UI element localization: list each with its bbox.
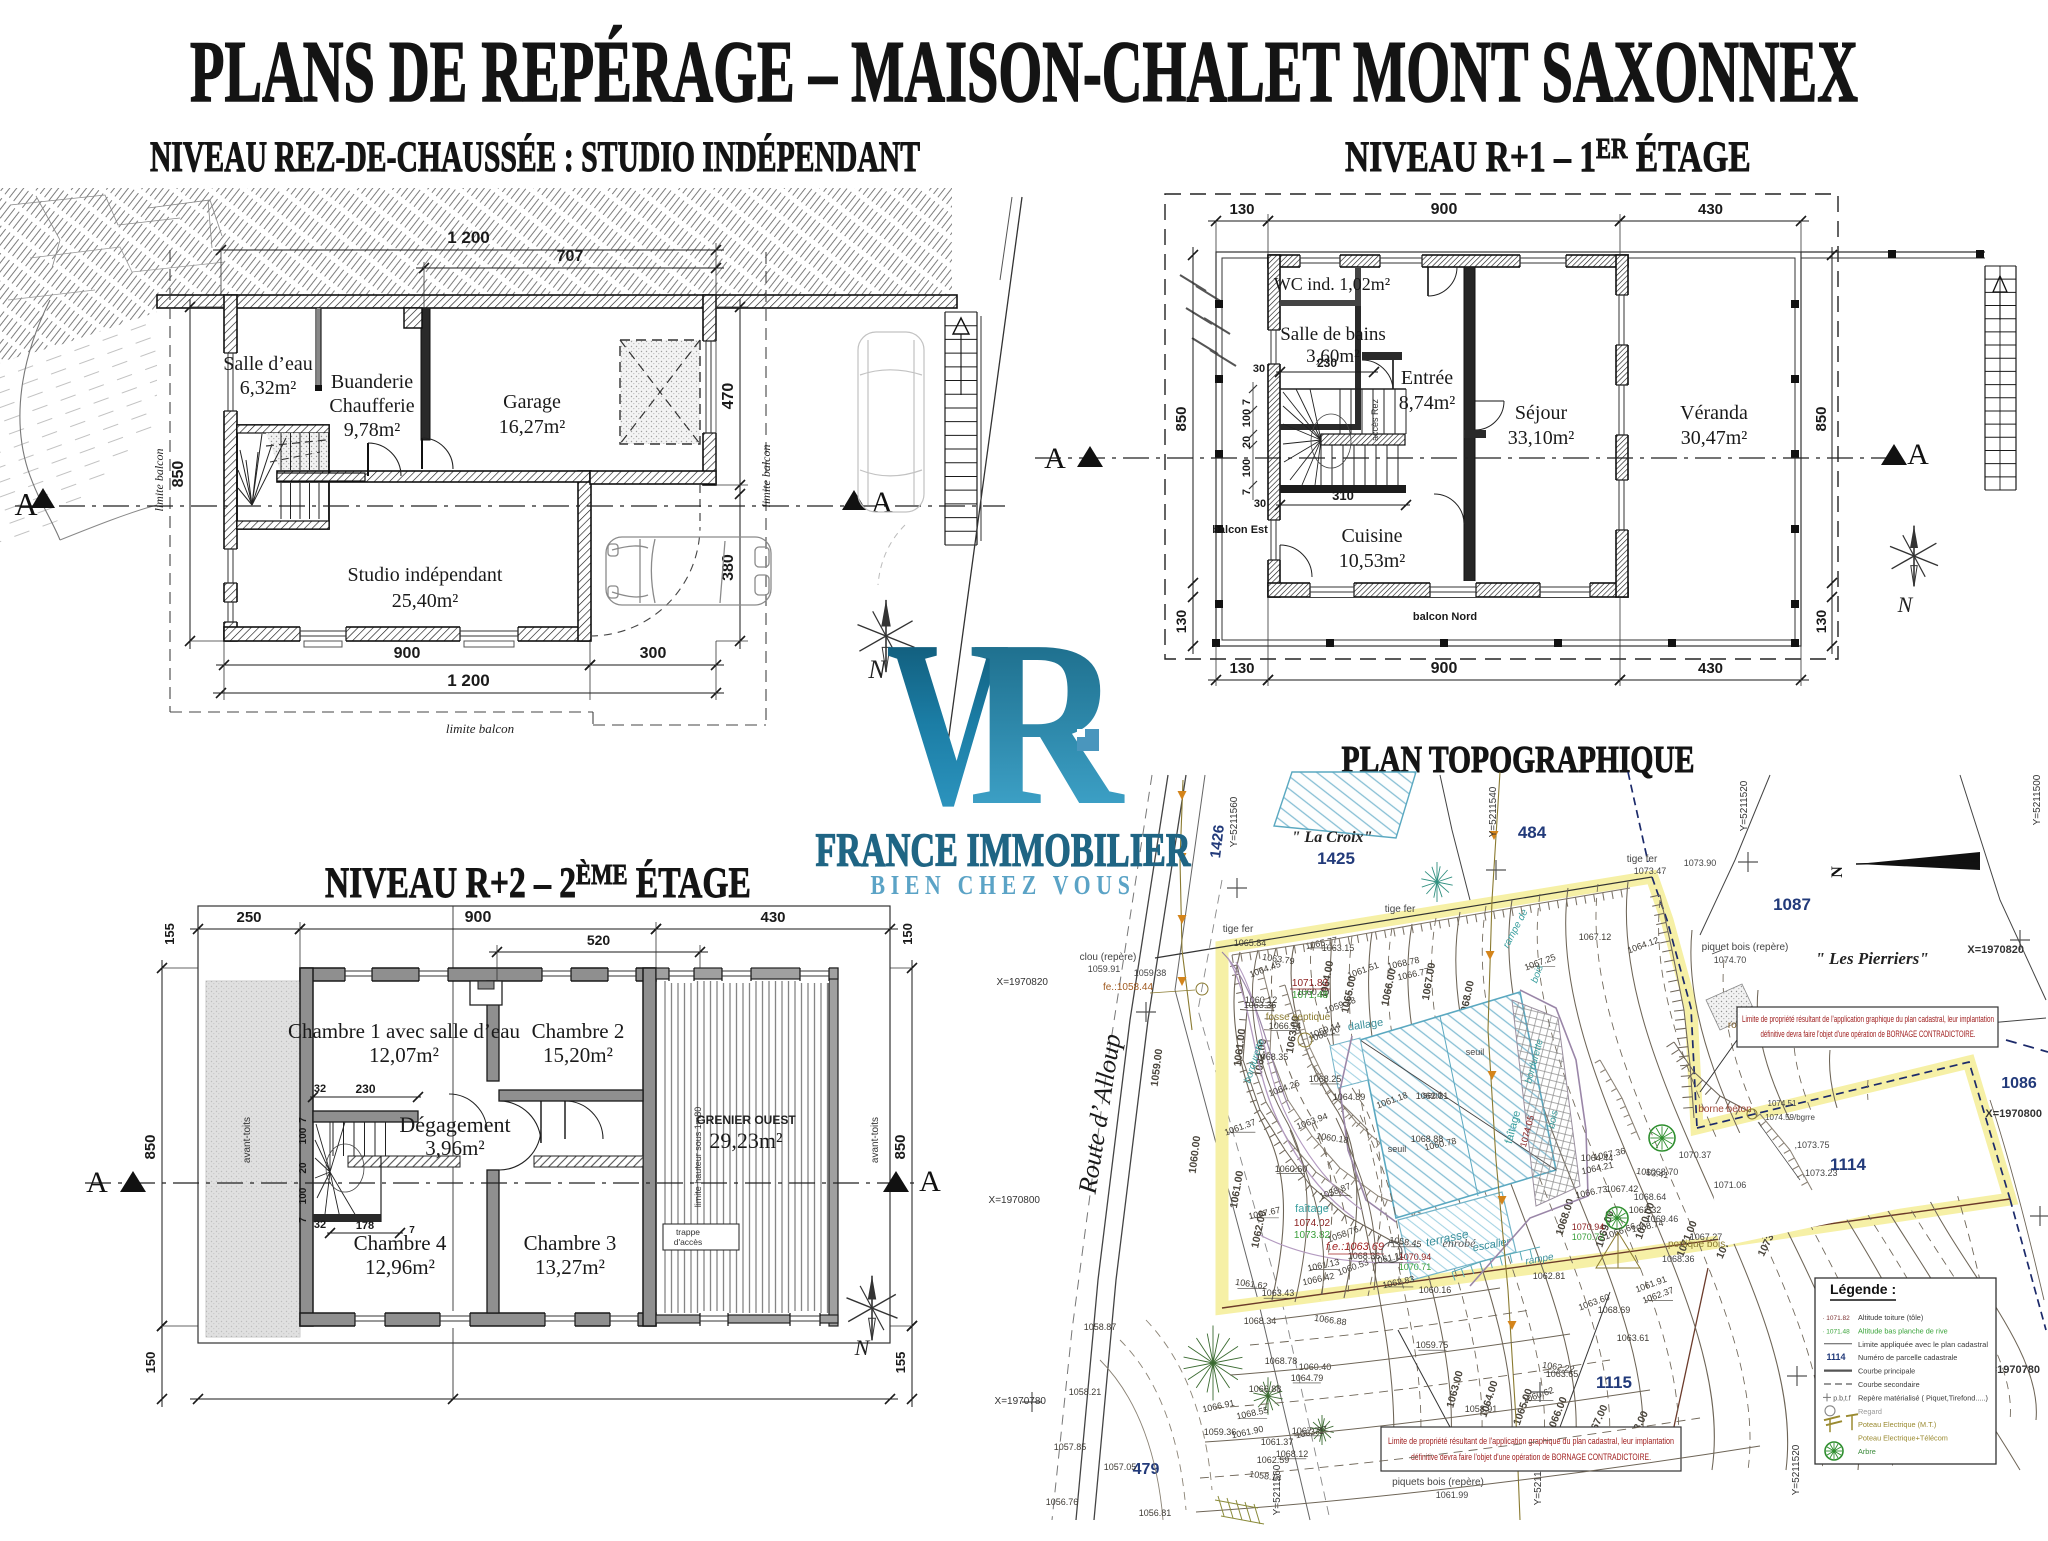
svg-text:1063.61: 1063.61 [1617,1333,1650,1343]
svg-text:accès Rez: accès Rez [1370,398,1380,441]
svg-text:fosse septique: fosse septique [1266,1012,1331,1023]
svg-text:seuil: seuil [1423,1090,1442,1100]
svg-text:X=1970820: X=1970820 [997,977,1049,988]
svg-text:avant-toits: avant-toits [870,1117,881,1163]
svg-text:300: 300 [640,645,667,662]
svg-text:BIEN CHEZ VOUS: BIEN CHEZ VOUS [871,870,1136,900]
svg-text:1064.79: 1064.79 [1291,1373,1324,1383]
svg-text:430: 430 [1698,660,1723,677]
svg-text:NIVEAU R+1 – 1ER ÉTAGE: NIVEAU R+1 – 1ER ÉTAGE [1345,132,1751,181]
svg-text:Courbe secondaire: Courbe secondaire [1858,1380,1920,1389]
svg-text:Y=5211520: Y=5211520 [1739,780,1750,831]
svg-text:1057.05: 1057.05 [1104,1462,1137,1472]
svg-text:1073.82: 1073.82 [1294,1230,1331,1241]
svg-text:1115: 1115 [1596,1373,1632,1392]
svg-text:limite balcon: limite balcon [759,445,773,508]
svg-text:Poteau Electrique (M.T.): Poteau Electrique (M.T.) [1858,1420,1936,1429]
svg-text:· 1071.82: · 1071.82 [1822,1315,1850,1322]
svg-text:N: N [854,1335,871,1360]
svg-text:33,10m²: 33,10m² [1508,427,1575,449]
svg-text:10,53m²: 10,53m² [1339,550,1406,572]
svg-text:100: 100 [1241,459,1253,477]
svg-text:trappe: trappe [676,1227,700,1237]
svg-text:1074.02: 1074.02 [1294,1218,1331,1229]
svg-text:130: 130 [1229,660,1254,677]
svg-text:Poteau Electrique+Télécom: Poteau Electrique+Télécom [1858,1434,1948,1443]
svg-text:NIVEAU R+2 – 2ÈME ÉTAGE: NIVEAU R+2 – 2ÈME ÉTAGE [325,858,751,907]
svg-text:1073.47: 1073.47 [1634,866,1667,876]
svg-text:1070.72: 1070.72 [1572,1232,1605,1242]
svg-text:limite balcon: limite balcon [152,449,166,512]
svg-text:250: 250 [236,909,261,926]
svg-text:avant-toits: avant-toits [242,1117,253,1163]
svg-text:Y=5211520: Y=5211520 [1791,1444,1802,1495]
svg-text:100: 100 [298,1187,309,1204]
svg-text:tige fer: tige fer [1223,924,1254,935]
svg-text:Y=5211560: Y=5211560 [1229,796,1240,847]
svg-text:900: 900 [394,645,421,662]
svg-text:Chambre 3: Chambre 3 [524,1231,617,1255]
svg-text:1061.99: 1061.99 [1436,1490,1469,1500]
svg-text:borne béton: borne béton [1698,1104,1751,1115]
svg-text:150: 150 [143,1352,158,1374]
svg-text:1068.12: 1068.12 [1276,1449,1309,1459]
svg-text:9,78m²: 9,78m² [344,419,401,441]
svg-text:1061.37: 1061.37 [1261,1437,1294,1447]
svg-text:1068.25: 1068.25 [1309,1074,1342,1084]
svg-text:8,74m²: 8,74m² [1399,392,1456,414]
svg-text:15,20m²: 15,20m² [543,1043,613,1067]
svg-text:1064.44: 1064.44 [1581,1153,1614,1163]
svg-text:900: 900 [465,909,492,926]
svg-text:1070.94: 1070.94 [1572,1222,1605,1232]
svg-text:7: 7 [1241,489,1253,495]
svg-text:A: A [1044,442,1066,475]
svg-text:1068.78: 1068.78 [1265,1356,1298,1366]
svg-text:Entrée: Entrée [1401,367,1453,389]
svg-text:faîtage: faîtage [1295,1203,1329,1215]
svg-text:N: N [1829,866,1846,878]
svg-text:limite balcon: limite balcon [446,721,514,736]
svg-text:Salle de bains: Salle de bains [1280,324,1386,345]
svg-text:850: 850 [142,1134,159,1159]
svg-text:Repère matérialisé ( Piquet,Ti: Repère matérialisé ( Piquet,Tirefond....… [1858,1393,1988,1402]
svg-text:430: 430 [1698,201,1723,218]
svg-text:707: 707 [557,248,584,265]
svg-text:Dégagement: Dégagement [399,1112,510,1137]
svg-text:Séjour: Séjour [1515,402,1568,424]
svg-text:A: A [919,1165,941,1198]
svg-text:32: 32 [314,1219,326,1231]
svg-text:Courbe principale: Courbe principale [1858,1367,1915,1376]
svg-text:X=1970800: X=1970800 [989,1195,1041,1206]
svg-text:1067.27: 1067.27 [1690,1232,1723,1242]
svg-text:470: 470 [720,383,737,410]
svg-text:Cuisine: Cuisine [1341,525,1402,547]
svg-text:7: 7 [409,1225,415,1236]
svg-text:1074.70: 1074.70 [1714,955,1747,965]
svg-text:30: 30 [1253,363,1265,375]
svg-text:Arbre: Arbre [1858,1447,1876,1456]
svg-text:Limite de propriété résultant: Limite de propriété résultant de l'appli… [1388,1436,1674,1447]
svg-text:29,23m²: 29,23m² [709,1128,783,1153]
svg-text:WC ind. 1,02m²: WC ind. 1,02m² [1274,274,1390,294]
svg-text:1068.64: 1068.64 [1634,1192,1667,1202]
svg-text:1070.94: 1070.94 [1399,1252,1432,1262]
svg-text:32: 32 [314,1083,326,1095]
svg-text:155: 155 [893,1352,908,1374]
svg-text:230: 230 [355,1082,375,1096]
svg-text:A: A [1907,438,1929,471]
svg-text:1062.81: 1062.81 [1533,1271,1566,1281]
svg-text:310: 310 [1332,488,1354,503]
svg-text:900: 900 [1431,201,1458,218]
svg-text:1 200: 1 200 [447,671,490,690]
svg-text:tige fer: tige fer [1627,854,1658,865]
svg-text:,1073.75: ,1073.75 [1794,1140,1829,1150]
svg-text:Chambre 1 avec salle d’eau: Chambre 1 avec salle d’eau [288,1019,521,1043]
svg-text:850: 850 [1813,406,1830,431]
svg-text:3,60m²: 3,60m² [1306,346,1360,367]
svg-text:Regard: Regard [1858,1407,1882,1416]
svg-text:1425: 1425 [1317,849,1355,868]
svg-text:3,96m²: 3,96m² [425,1136,484,1160]
svg-text:1114: 1114 [1830,1155,1866,1174]
svg-text:PLANS DE REPÉRAGE – MAISON-CHA: PLANS DE REPÉRAGE – MAISON-CHALET MONT S… [190,24,1858,121]
svg-text:850: 850 [1173,406,1190,431]
svg-text:1070.37: 1070.37 [1679,1150,1712,1160]
svg-text:" Les Pierriers": " Les Pierriers" [1815,949,1928,968]
svg-text:1056.81: 1056.81 [1139,1508,1172,1518]
svg-text:20: 20 [298,1162,309,1174]
svg-text:30,47m²: 30,47m² [1681,427,1748,449]
svg-text:GRENIER OUEST: GRENIER OUEST [696,1113,796,1127]
svg-text:13,27m²: 13,27m² [535,1255,605,1279]
svg-text:155: 155 [162,923,177,945]
svg-text:Chambre 2: Chambre 2 [532,1019,625,1043]
svg-text:Limite de propriété résultant: Limite de propriété résultant de l'appli… [1742,1014,1994,1024]
svg-text:100: 100 [298,1127,309,1144]
svg-text:R: R [968,591,1125,855]
svg-text:Garage: Garage [503,391,561,413]
svg-text:A: A [871,486,893,519]
svg-text:Altitude bas planche de rive: Altitude bas planche de rive [1858,1326,1948,1335]
svg-text:1071.48: 1071.48 [1292,990,1329,1001]
svg-text:1068.34: 1068.34 [1244,1316,1277,1326]
svg-text:Légende :: Légende : [1830,1281,1896,1297]
svg-text:130: 130 [1229,201,1254,218]
svg-text:1059.38: 1059.38 [1134,968,1167,978]
svg-text:clou (repère): clou (repère) [1080,952,1137,963]
svg-text:1066.88: 1066.88 [1249,1384,1282,1394]
svg-text:définitive devra faire l'objet: définitive devra faire l'objet d'une opé… [1761,1029,1976,1039]
svg-text:A: A [86,1166,108,1199]
svg-text:1058.21: 1058.21 [1069,1387,1102,1397]
svg-text:Véranda: Véranda [1680,402,1748,424]
svg-text:130: 130 [1173,610,1189,634]
svg-text:25,40m²: 25,40m² [392,590,459,612]
svg-text:Y=5211500: Y=5211500 [2032,774,2043,825]
svg-text:30: 30 [1254,498,1266,510]
svg-text:balcon Nord: balcon Nord [1413,611,1477,623]
svg-text:N: N [1897,592,1914,617]
svg-text:tige fer: tige fer [1385,904,1416,915]
svg-text:Numéro de parcelle cadastrale: Numéro de parcelle cadastrale [1858,1353,1957,1362]
svg-text:1058.87: 1058.87 [1084,1322,1117,1332]
svg-text:Chambre 4: Chambre 4 [354,1231,447,1255]
svg-text:1059.75: 1059.75 [1416,1340,1449,1350]
svg-text:6,32m²: 6,32m² [240,377,297,399]
svg-text:1073.90: 1073.90 [1684,858,1717,868]
svg-text:piquet bois (repère): piquet bois (repère) [1702,942,1789,953]
svg-text:1067.12: 1067.12 [1579,932,1612,942]
svg-text:1056.76: 1056.76 [1046,1497,1079,1507]
svg-text:7: 7 [298,1217,309,1223]
svg-text:seuil: seuil [1466,1047,1485,1057]
svg-text:1 200: 1 200 [447,228,490,247]
svg-text:7: 7 [298,1117,309,1123]
svg-text:430: 430 [760,909,785,926]
svg-text:1060.12: 1060.12 [1245,995,1278,1005]
svg-text:1059.36: 1059.36 [1204,1427,1237,1437]
svg-text:· 1071.48: · 1071.48 [1822,1328,1850,1335]
svg-text:Studio indépendant: Studio indépendant [348,564,503,586]
svg-text:1069.46: 1069.46 [1646,1214,1679,1224]
svg-text:1065.84: 1065.84 [1234,938,1267,948]
svg-text:Salle d’eau: Salle d’eau [223,353,312,375]
svg-text:X=1970800: X=1970800 [1985,1108,2042,1120]
svg-text:1057.85: 1057.85 [1054,1442,1087,1452]
svg-text:1060.16: 1060.16 [1419,1285,1452,1295]
svg-text:1059.91: 1059.91 [1088,964,1121,974]
svg-text:p.b,t.f: p.b,t.f [1833,1395,1851,1402]
svg-text:850: 850 [892,1134,909,1159]
svg-text:balcon Est: balcon Est [1212,524,1268,536]
svg-text:130: 130 [1813,610,1829,634]
svg-text:N: N [867,655,887,684]
svg-text:178: 178 [356,1220,374,1232]
svg-text:X=1970780: X=1970780 [995,1396,1047,1407]
svg-text:1074.59/bgrre: 1074.59/bgrre [1765,1113,1815,1122]
svg-text:d'accès: d'accès [674,1237,703,1247]
svg-text:16,27m²: 16,27m² [499,416,566,438]
svg-text:Y=5211540: Y=5211540 [1488,786,1499,837]
svg-text:12,07m²: 12,07m² [369,1043,439,1067]
svg-text:1074.51: 1074.51 [1768,1099,1797,1108]
svg-text:X=1970820: X=1970820 [1967,944,2024,956]
svg-text:900: 900 [1431,660,1458,677]
svg-text:484: 484 [1518,823,1547,842]
svg-text:1114: 1114 [1826,1352,1845,1362]
svg-text:1063.65: 1063.65 [1546,1369,1579,1379]
svg-text:" La Croix": " La Croix" [1292,829,1373,846]
svg-text:1071.83: 1071.83 [1292,978,1329,989]
svg-text:Altitude toiture (tôle): Altitude toiture (tôle) [1858,1313,1923,1322]
svg-text:NIVEAU REZ-DE-CHAUSSÉE : STUDI: NIVEAU REZ-DE-CHAUSSÉE : STUDIO INDÉPEND… [150,134,920,181]
svg-text:Buanderie: Buanderie [331,371,413,393]
svg-text:1068.70: 1068.70 [1646,1167,1679,1177]
svg-text:7: 7 [1241,399,1253,405]
svg-text:1086: 1086 [2001,1075,2037,1092]
svg-text:1068.69: 1068.69 [1598,1305,1631,1315]
svg-text:1060.60: 1060.60 [1275,1164,1308,1174]
svg-text:150: 150 [900,923,915,945]
svg-text:1087: 1087 [1773,895,1811,914]
svg-text:1071.06: 1071.06 [1714,1180,1747,1190]
svg-text:Limite appliquée avec le plan: Limite appliquée avec le plan cadastral [1858,1340,1988,1349]
svg-text:520: 520 [587,932,611,948]
svg-text:12,96m²: 12,96m² [365,1255,435,1279]
svg-text:850: 850 [170,461,187,488]
svg-text:Chaufferie: Chaufferie [329,395,414,417]
svg-text:1064.89: 1064.89 [1333,1092,1366,1102]
svg-text:1068.36: 1068.36 [1662,1254,1695,1264]
svg-text:seuil: seuil [1388,1144,1407,1154]
svg-text:fe.:1058.44: fe.:1058.44 [1103,982,1153,993]
svg-text:enrobé: enrobé [1443,1236,1477,1250]
svg-text:1070.71: 1070.71 [1399,1262,1432,1272]
